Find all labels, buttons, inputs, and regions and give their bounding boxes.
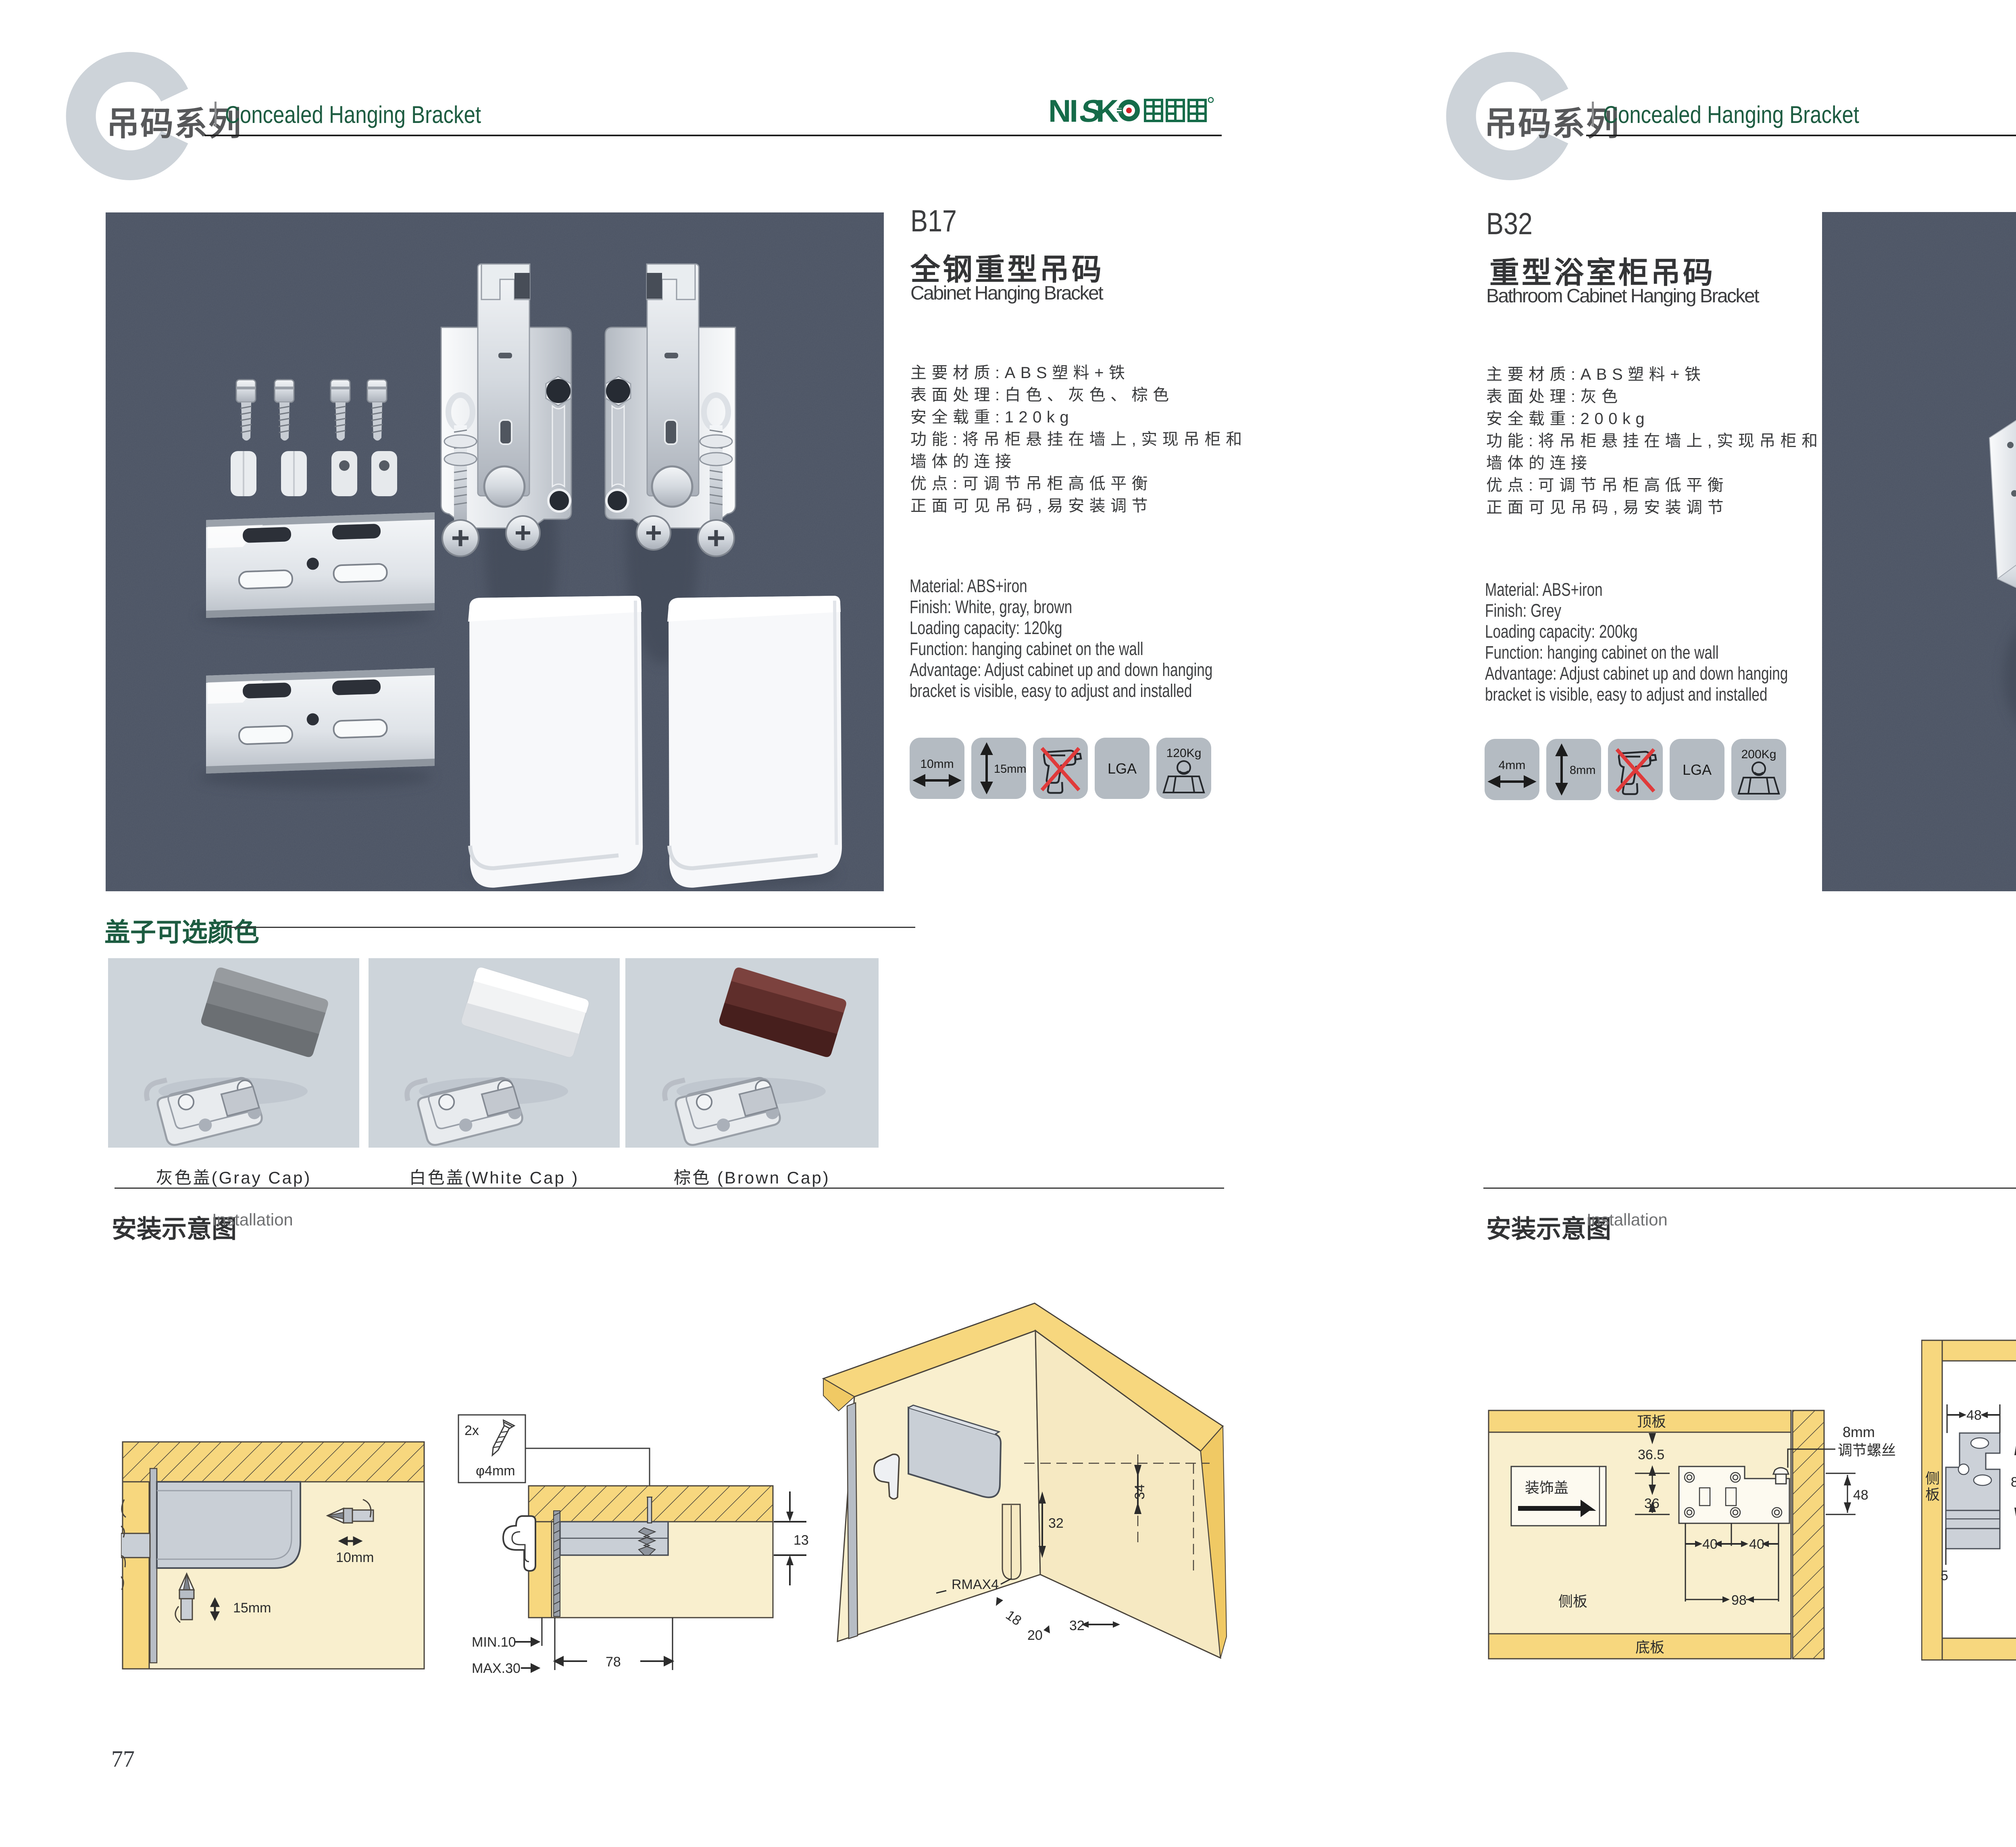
svg-text:36.5: 36.5: [1638, 1447, 1664, 1462]
svg-text:48: 48: [1853, 1487, 1868, 1503]
svg-text:32: 32: [1048, 1516, 1064, 1531]
svg-text:板: 板: [1925, 1486, 1940, 1503]
svg-text:侧板: 侧板: [1558, 1593, 1587, 1610]
svg-text:MAX.30: MAX.30: [472, 1661, 521, 1676]
svg-text:2x: 2x: [464, 1423, 479, 1438]
svg-text:120Kg: 120Kg: [1166, 747, 1202, 760]
svg-text:20: 20: [1027, 1628, 1043, 1643]
svg-text:NI: NI: [1048, 95, 1077, 127]
svg-text:顶板: 顶板: [1637, 1413, 1666, 1430]
svg-text:4mm: 4mm: [1499, 759, 1526, 772]
svg-text:调节螺丝: 调节螺丝: [1838, 1442, 1896, 1458]
svg-text:8mm: 8mm: [1570, 764, 1595, 777]
svg-text:底板: 底板: [1635, 1639, 1664, 1656]
svg-text:98: 98: [1731, 1593, 1747, 1608]
svg-text:40: 40: [1749, 1537, 1764, 1552]
svg-text:18: 18: [1003, 1607, 1024, 1629]
svg-text:34: 34: [1132, 1484, 1148, 1500]
svg-text:5: 5: [1941, 1568, 1948, 1583]
svg-text:80: 80: [2011, 1475, 2016, 1490]
svg-text:MIN.10: MIN.10: [472, 1635, 516, 1650]
svg-text:32: 32: [1069, 1618, 1085, 1633]
svg-text:15mm: 15mm: [994, 763, 1026, 776]
svg-text:10mm: 10mm: [336, 1550, 374, 1565]
svg-text:48: 48: [1966, 1408, 1982, 1423]
svg-text:10mm: 10mm: [920, 757, 954, 771]
svg-text:LGA: LGA: [1683, 761, 1712, 778]
svg-text:LGA: LGA: [1108, 760, 1137, 777]
svg-text:8mm: 8mm: [1843, 1424, 1875, 1440]
svg-text:40: 40: [1702, 1537, 1718, 1552]
svg-text:RMAX4: RMAX4: [952, 1577, 999, 1592]
svg-text:侧: 侧: [1925, 1470, 1940, 1487]
svg-text:装饰盖: 装饰盖: [1525, 1479, 1568, 1496]
svg-text:200Kg: 200Kg: [1741, 748, 1776, 761]
svg-text:K: K: [1096, 95, 1118, 127]
svg-text:78: 78: [606, 1654, 621, 1670]
svg-text:φ4mm: φ4mm: [476, 1463, 515, 1479]
svg-text:15mm: 15mm: [233, 1600, 271, 1616]
